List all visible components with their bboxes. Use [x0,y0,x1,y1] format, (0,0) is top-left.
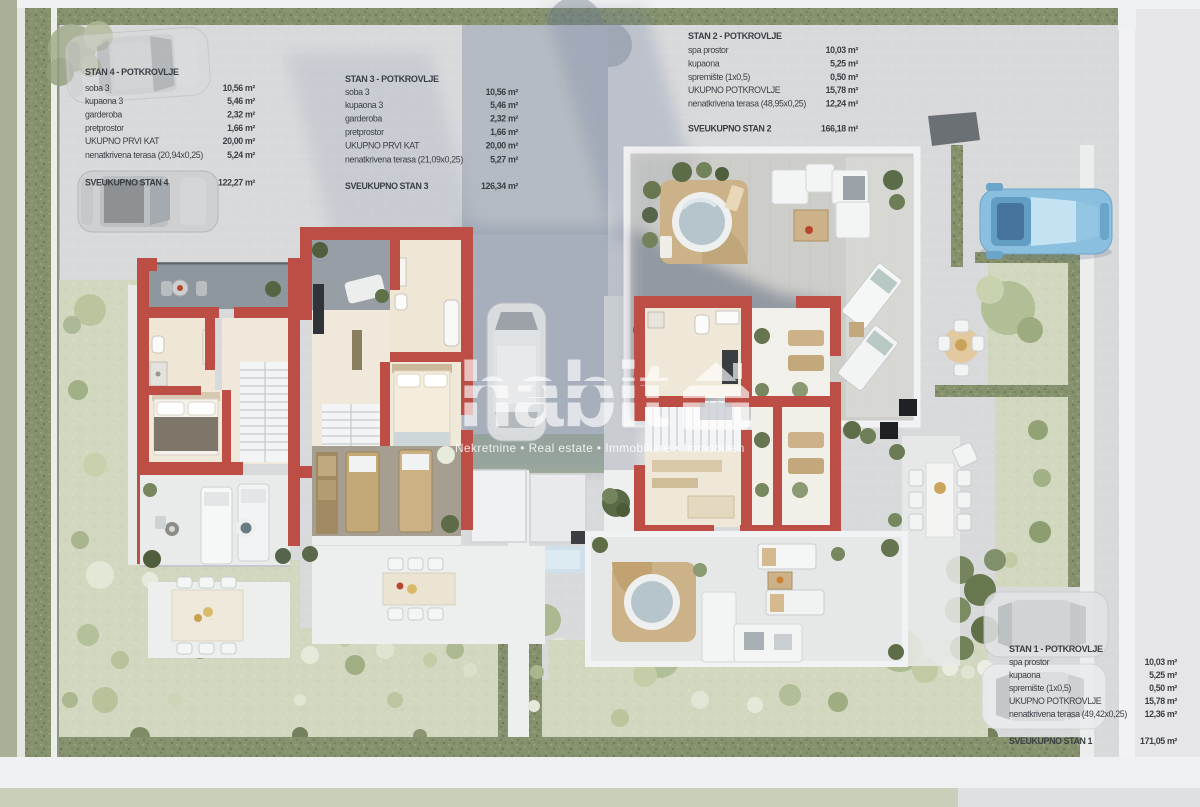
svg-text:5,46 m²: 5,46 m² [227,96,255,106]
svg-text:122,27 m²: 122,27 m² [218,178,255,188]
svg-text:spa prostor: spa prostor [1009,657,1050,667]
svg-text:UKUPNO POTKROVLJE: UKUPNO POTKROVLJE [1009,696,1102,706]
svg-text:habit: habit [458,344,669,446]
svg-text:5,46 m²: 5,46 m² [490,100,518,110]
svg-text:12,36 m²: 12,36 m² [1145,709,1178,719]
svg-text:soba 3: soba 3 [345,87,370,97]
svg-text:10,56 m²: 10,56 m² [486,87,519,97]
svg-text:nenatkrivena terasa (21,09x0,: nenatkrivena terasa (21,09x0,25) [345,155,463,165]
svg-text:126,34 m²: 126,34 m² [481,181,518,191]
svg-text:20,00 m²: 20,00 m² [486,141,519,151]
svg-text:5,24 m²: 5,24 m² [227,150,255,160]
svg-text:spremište (1x0,5): spremište (1x0,5) [1009,683,1071,693]
svg-text:nenatkrivena terasa (48,95x0,: nenatkrivena terasa (48,95x0,25) [688,99,806,109]
svg-text:Nekretnine • Real estate •: Nekretnine • Real estate • Immobiliare •… [455,441,745,455]
svg-text:0,50 m²: 0,50 m² [830,72,858,82]
svg-text:20,00 m²: 20,00 m² [223,136,256,146]
svg-text:spa prostor: spa prostor [688,45,729,55]
svg-text:nenatkrivena terasa (20,94x0,: nenatkrivena terasa (20,94x0,25) [85,150,203,160]
svg-text:spremište (1x0,5): spremište (1x0,5) [688,72,750,82]
svg-text:UKUPNO PRVI KAT: UKUPNO PRVI KAT [85,136,160,146]
svg-text:STAN 2 - POTKROVLJE: STAN 2 - POTKROVLJE [688,31,782,41]
svg-text:171,05 m²: 171,05 m² [1140,736,1177,746]
svg-text:garderoba: garderoba [85,110,122,120]
svg-text:garderoba: garderoba [345,114,382,124]
svg-text:12,24 m²: 12,24 m² [826,99,859,109]
svg-text:SVEUKUPNO STAN 4: SVEUKUPNO STAN 4 [85,178,169,188]
svg-text:STAN 4 - POTKROVLJE: STAN 4 - POTKROVLJE [85,67,179,77]
svg-text:kupaona: kupaona [1009,670,1041,680]
svg-text:UKUPNO PRVI KAT: UKUPNO PRVI KAT [345,141,420,151]
svg-text:0,50 m²: 0,50 m² [1149,683,1177,693]
svg-text:SVEUKUPNO STAN 2: SVEUKUPNO STAN 2 [688,124,772,134]
svg-text:10,03 m²: 10,03 m² [1145,657,1178,667]
svg-text:SVEUKUPNO STAN 1: SVEUKUPNO STAN 1 [1009,736,1093,746]
svg-text:soba 3: soba 3 [85,83,110,93]
svg-text:10,03 m²: 10,03 m² [826,45,859,55]
svg-text:kupaona 3: kupaona 3 [85,96,123,106]
svg-text:5,25 m²: 5,25 m² [830,59,858,69]
svg-text:1,66 m²: 1,66 m² [227,123,255,133]
svg-text:15,78 m²: 15,78 m² [1145,696,1178,706]
svg-text:15,78 m²: 15,78 m² [826,85,859,95]
svg-text:1,66 m²: 1,66 m² [490,127,518,137]
svg-text:STAN 1 - POTKROVLJE: STAN 1 - POTKROVLJE [1009,644,1103,654]
svg-text:kupaona 3: kupaona 3 [345,100,383,110]
svg-text:pretprostor: pretprostor [345,127,384,137]
svg-text:SVEUKUPNO STAN 3: SVEUKUPNO STAN 3 [345,181,429,191]
svg-text:kupaona: kupaona [688,59,720,69]
svg-text:5,27 m²: 5,27 m² [490,155,518,165]
svg-text:2,32 m²: 2,32 m² [490,114,518,124]
svg-text:nenatkrivena terasa (49,42x0,: nenatkrivena terasa (49,42x0,25) [1009,709,1127,719]
svg-text:5,25 m²: 5,25 m² [1149,670,1177,680]
svg-text:pretprostor: pretprostor [85,123,124,133]
svg-text:STAN 3 - POTKROVLJE: STAN 3 - POTKROVLJE [345,74,439,84]
svg-text:166,18 m²: 166,18 m² [821,124,858,134]
svg-text:2,32 m²: 2,32 m² [227,110,255,120]
svg-text:10,56 m²: 10,56 m² [223,83,256,93]
svg-text:UKUPNO POTKROVLJE: UKUPNO POTKROVLJE [688,85,781,95]
